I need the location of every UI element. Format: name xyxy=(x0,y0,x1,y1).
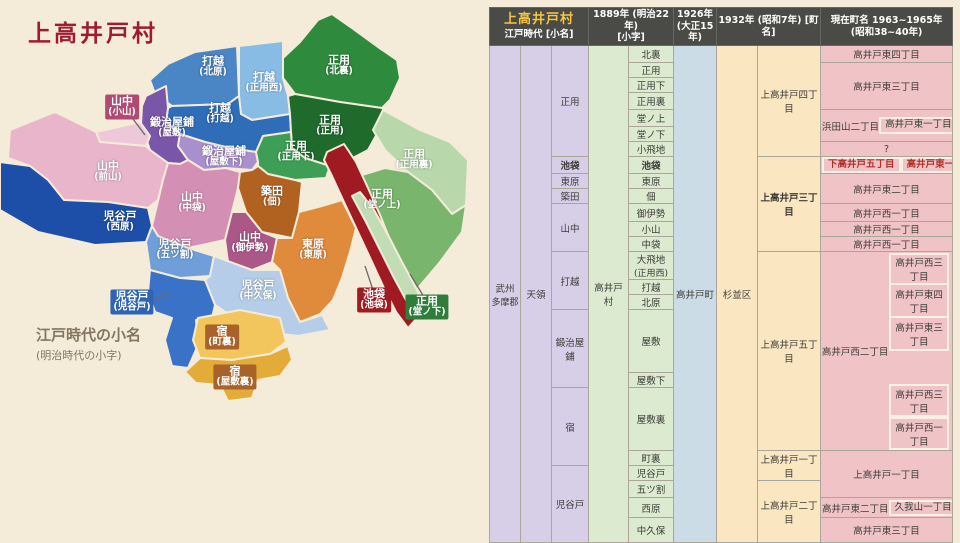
current-nishi3-box: 高井戸西三丁目 xyxy=(889,253,949,285)
place-name-history-table-panel: 上高井戸村江戸時代 [小名] 1889年 (明治22年)[小字] 1926年(大… xyxy=(480,0,960,424)
cell-koaza-tsukuda: 佃 xyxy=(629,189,674,204)
cell-edoname-koyato: 児谷戸 xyxy=(552,466,589,543)
cell-current-r24: 高井戸東三丁目 xyxy=(821,518,953,543)
current-higashi3-box: 高井戸東三丁目 xyxy=(889,316,949,351)
cell-koaza-koyama: 小山 xyxy=(629,222,674,237)
cell-koaza-itsutsuwari: 五ツ割 xyxy=(629,481,674,498)
header-1932: 1932年 (昭和7年) [町名] xyxy=(717,8,821,46)
cell-cho1932-3chome: 上高井戸三丁目 xyxy=(758,157,821,252)
map-label-kaji-yashiki: 鍛治屋鋪(屋敷) xyxy=(150,117,194,140)
cell-koaza-shoyo: 正用 xyxy=(629,63,674,78)
cell-edoname-tsukuda: 築田 xyxy=(552,189,589,204)
header-current: 現在町名 1963~1965年(昭和38~40年) xyxy=(821,8,953,46)
current-higashi1: 高井戸東一丁目 xyxy=(901,157,953,173)
map-label-shoyo-donoshita: 正用(堂ノ下) xyxy=(405,295,448,320)
cell-edoname-ikebukuro: 池袋 xyxy=(552,157,589,174)
map-caption-line1: 江戸時代の小名 xyxy=(36,324,141,345)
map-label-shuku-yashikiura: 宿(屋敷裏) xyxy=(213,365,256,390)
map-label-koyato-nishihara: 児谷戸(西原) xyxy=(104,211,137,234)
map-label-uchikoshi-kitahara: 打越(北原) xyxy=(199,56,227,79)
cell-koaza-kotobichi: 小飛地 xyxy=(629,142,674,157)
cell-koaza-yashiki: 屋敷 xyxy=(629,310,674,373)
cell-cho1932-4chome: 上高井戸四丁目 xyxy=(758,46,821,157)
cell-edoname-shuku: 宿 xyxy=(552,388,589,466)
table-header-row: 上高井戸村江戸時代 [小名] 1889年 (明治22年)[小字] 1926年(大… xyxy=(490,8,953,46)
map-caption: 江戸時代の小名 (明治時代の小字) xyxy=(36,324,141,363)
map-label-yamanaka-koyama: 山中(小山) xyxy=(105,95,139,120)
cell-tenryo: 天領 xyxy=(521,46,552,543)
map-caption-line2: (明治時代の小字) xyxy=(36,347,141,363)
cell-koaza-oise: 御伊勢 xyxy=(629,204,674,222)
cell-koaza-kitahara: 北原 xyxy=(629,295,674,310)
cell-edoname-shoyo: 正用 xyxy=(552,46,589,157)
cell-current-r7: ? xyxy=(821,142,953,157)
cell-current-r2: 高井戸東三丁目 xyxy=(821,63,953,110)
cell-current-r23: 高井戸東二丁目久我山一丁目 xyxy=(821,498,953,518)
cell-current-r5: 浜田山二丁目高井戸東一丁目 xyxy=(821,110,953,142)
cell-koaza-nishihara: 西原 xyxy=(629,498,674,518)
cell-province: 武州多摩郡 xyxy=(490,46,521,543)
current-r14-gap xyxy=(889,351,949,384)
map-label-uchikoshi-uchikoshi: 打越(打越) xyxy=(206,103,234,126)
pointer-line-ikebukuro xyxy=(365,266,373,290)
cell-koaza-uchikoshi: 打越 xyxy=(629,280,674,295)
cell-koaza-koyato: 児谷戸 xyxy=(629,466,674,481)
current-r14-boxes: 高井戸西三丁目 高井戸東四丁目 高井戸東三丁目 高井戸西三丁目 高井戸西一丁目 xyxy=(889,252,952,450)
cell-koaza-nakabukuro: 中袋 xyxy=(629,237,674,252)
cell-current-r9: 高井戸東二丁目 xyxy=(821,174,953,204)
cell-village-1889: 高井戸村 xyxy=(589,46,629,543)
cell-koaza-nakakubo: 中久保 xyxy=(629,518,674,543)
cell-koaza-donoshita: 堂ノ下 xyxy=(629,127,674,142)
cell-koaza-yashikiura: 屋敷裏 xyxy=(629,388,674,451)
cell-current-r13: 高井戸西一丁目 xyxy=(821,237,953,252)
cell-edoname-kajiyashiki: 鍛治屋鋪 xyxy=(552,310,589,388)
cell-koaza-donoue: 堂ノ上 xyxy=(629,110,674,127)
cell-current-r12: 高井戸西一丁目 xyxy=(821,222,953,237)
cell-current-r1: 高井戸東四丁目 xyxy=(821,46,953,63)
place-name-history-table: 上高井戸村江戸時代 [小名] 1889年 (明治22年)[小字] 1926年(大… xyxy=(489,7,953,543)
cell-koaza-shoyoura: 正用裏 xyxy=(629,93,674,110)
map-label-yamanaka-nakabukuro: 山中(中袋) xyxy=(178,192,206,215)
cell-current-r20: 上高井戸一丁目 xyxy=(821,451,953,498)
current-higashi1-box: 高井戸東一丁目 xyxy=(879,117,952,133)
cell-edoname-higashihara: 東原 xyxy=(552,174,589,189)
current-nishi2: 高井戸西二丁目 xyxy=(821,252,889,450)
current-shimotakaido5: 下高井戸五丁目 xyxy=(822,157,901,173)
map-label-ikebukuro: 池袋(池袋) xyxy=(357,288,391,313)
edo-period-map: 上高井戸村 打越(北原) 打越(正用西) 正用(北裏) 打越(打越) 鍛治屋鋪(… xyxy=(0,0,480,424)
cell-koaza-machiura: 町裏 xyxy=(629,451,674,466)
current-kugayama1-box: 久我山一丁目 xyxy=(889,500,953,516)
cell-edoname-uchikoshi: 打越 xyxy=(552,252,589,310)
header-1889: 1889年 (明治22年)[小字] xyxy=(589,8,674,46)
map-label-shoyo-shoyoshita: 正用(正用下) xyxy=(277,141,314,164)
map-label-shoyo-donoue: 正用(堂ノ上) xyxy=(363,189,400,212)
map-label-koyato-itsutsuwari: 児谷戸(五ツ割) xyxy=(156,239,193,262)
cell-current-r14: 高井戸西二丁目 高井戸西三丁目 高井戸東四丁目 高井戸東三丁目 高井戸西三丁目 … xyxy=(821,252,953,451)
map-label-uchikoshi-shoyosai: 打越(正用西) xyxy=(245,72,282,95)
cell-current-r11: 高井戸西一丁目 xyxy=(821,204,953,222)
cell-koaza-kitaura: 北裏 xyxy=(629,46,674,63)
cell-cho1932-1chome: 上高井戸一丁目 xyxy=(758,451,821,481)
cell-ward-1932: 杉並区 xyxy=(717,46,758,543)
cell-current-r8: 下高井戸五丁目高井戸東一丁目 xyxy=(821,157,953,174)
current-nishi1-box: 高井戸西一丁目 xyxy=(889,417,949,450)
map-label-shoyo-shoyoura: 正用(正用裏) xyxy=(395,149,432,172)
cell-koaza-higashihara: 東原 xyxy=(629,174,674,189)
header-edo-era: 上高井戸村江戸時代 [小名] xyxy=(490,8,589,46)
cell-cho1932-2chome: 上高井戸二丁目 xyxy=(758,481,821,543)
cell-koaza-yashikishita: 屋敷下 xyxy=(629,373,674,388)
map-label-shoyo-shoyo: 正用(正用) xyxy=(316,115,344,138)
current-hamadayama: 浜田山二丁目 xyxy=(822,119,879,133)
map-label-higashihara: 東原(東原) xyxy=(299,239,327,262)
header-1926: 1926年(大正15年) xyxy=(674,8,717,46)
map-label-shuku-machiura: 宿(町裏) xyxy=(205,325,239,350)
current-higashi4-box: 高井戸東四丁目 xyxy=(889,283,949,318)
map-label-yamanaka-oise: 山中(御伊勢) xyxy=(231,232,268,255)
cell-edoname-yamanaka: 山中 xyxy=(552,204,589,252)
current-higashi2: 高井戸東二丁目 xyxy=(822,501,889,515)
map-label-kaji-yashikishita: 鍛治屋鋪(屋敷下) xyxy=(202,146,246,169)
cell-koaza-daihichi: 大飛地(正用西) xyxy=(629,252,674,280)
cell-cho1932-5chome: 上高井戸五丁目 xyxy=(758,252,821,451)
current-nishi3-box2: 高井戸西三丁目 xyxy=(889,384,949,417)
cell-town-1926: 高井戸町 xyxy=(674,46,717,543)
map-title: 上高井戸村 xyxy=(28,14,158,48)
map-label-koyato-koyato: 児谷戸(児谷戸) xyxy=(110,290,153,315)
cell-koaza-ikebukuro: 池袋 xyxy=(629,157,674,174)
map-label-shoyo-kitaura: 正用(北裏) xyxy=(325,55,353,78)
cell-koaza-shoyoshita: 正用下 xyxy=(629,78,674,93)
map-label-tsukuda: 築田(佃) xyxy=(261,186,283,209)
map-label-yamanaka-maeyama: 山中(前山) xyxy=(94,161,122,184)
map-label-koyato-nakakubo: 児谷戸(中久保) xyxy=(239,280,276,303)
